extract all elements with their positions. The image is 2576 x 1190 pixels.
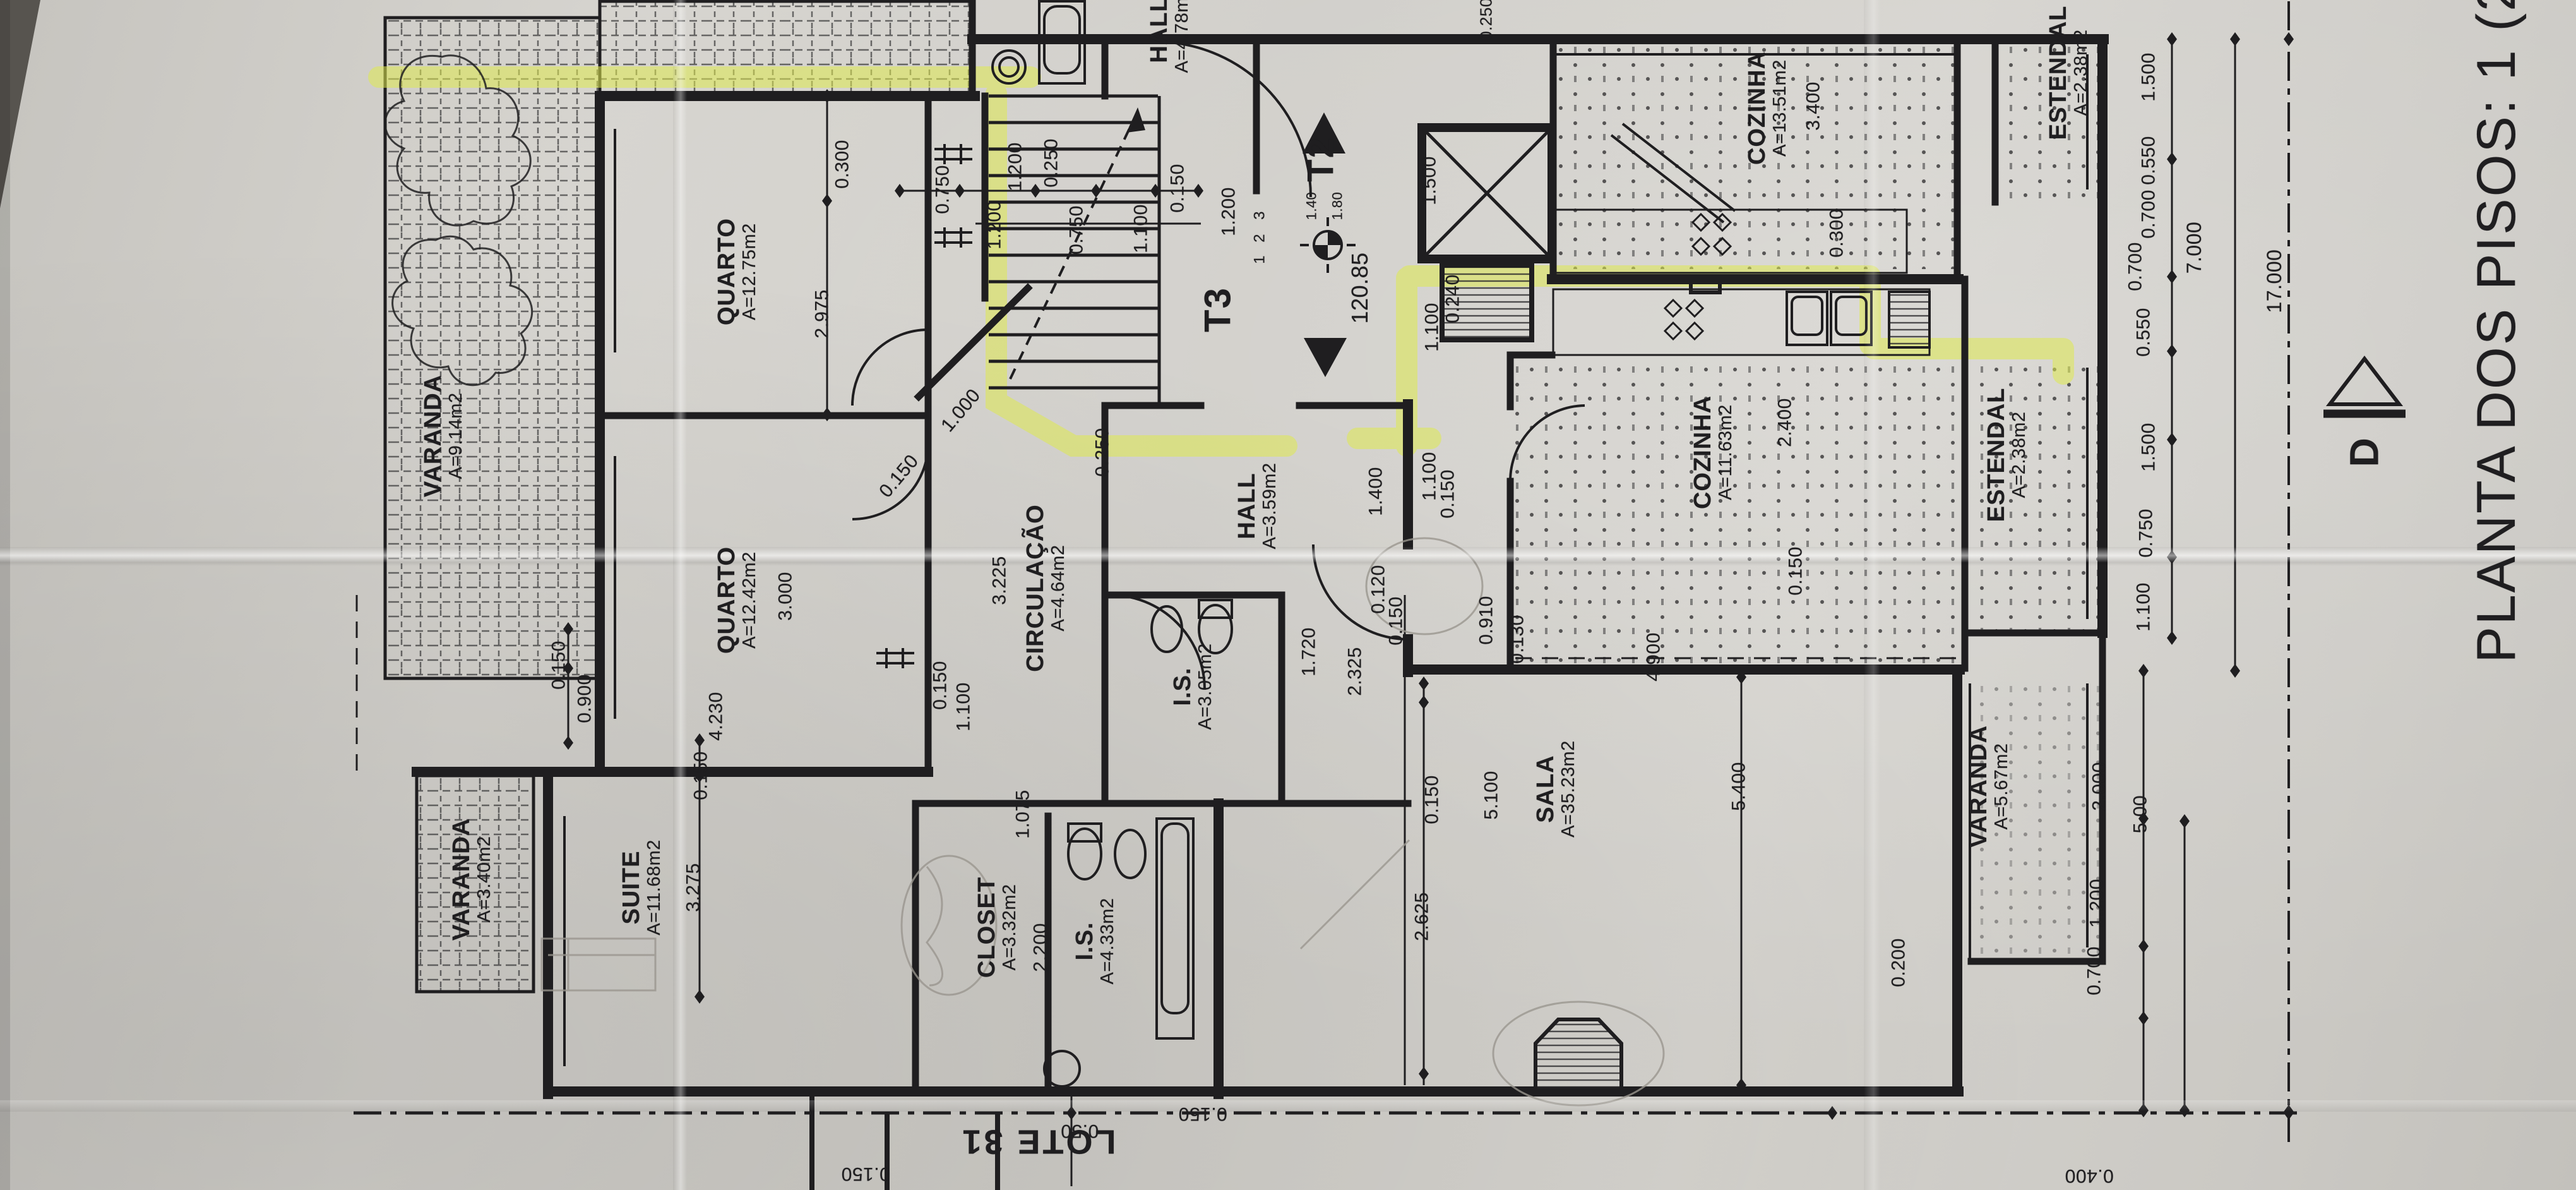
sill-symbols <box>876 144 972 668</box>
paper-fold-horizontal <box>0 547 2576 566</box>
elevator <box>1422 128 1552 340</box>
balcony-varanda-914 <box>385 18 600 678</box>
paper-fold-vertical-2 <box>1864 0 1880 1190</box>
bidet-is433 <box>1115 830 1145 878</box>
estendal-tiles-lower <box>1972 358 2101 630</box>
stair-break-line <box>1010 111 1138 379</box>
toilet-is433 <box>1068 829 1101 879</box>
kitchen-tiles-upper <box>1557 42 1955 269</box>
photographed-floor-plan: { "title": "PLANTA DOS PISOS: 1 (2, 3", … <box>0 0 2576 1190</box>
f <box>1535 1019 1621 1090</box>
stair-steps-lines <box>989 96 1159 404</box>
balcony-varanda-340 <box>417 776 534 992</box>
floor-plan-drawing <box>0 0 2576 1190</box>
t2-arrow-icon <box>1303 112 1345 153</box>
paper-fold-horizontal-2 <box>0 1100 2576 1112</box>
t3-arrow-icon <box>1304 338 1347 377</box>
stair-direction-arrowhead <box>1126 107 1145 133</box>
fridge <box>1889 292 1929 347</box>
toilet-is305 <box>1199 605 1232 653</box>
varanda-tiles <box>1972 683 2101 959</box>
section-d-triangle-icon <box>2330 359 2399 404</box>
paper-fold-vertical <box>673 0 687 1190</box>
estendal-tiles-upper <box>1996 42 2101 201</box>
tile-regions <box>1513 42 2101 959</box>
hob-lower <box>1665 300 1703 339</box>
kitchen-tiles-lower <box>1513 358 1955 667</box>
